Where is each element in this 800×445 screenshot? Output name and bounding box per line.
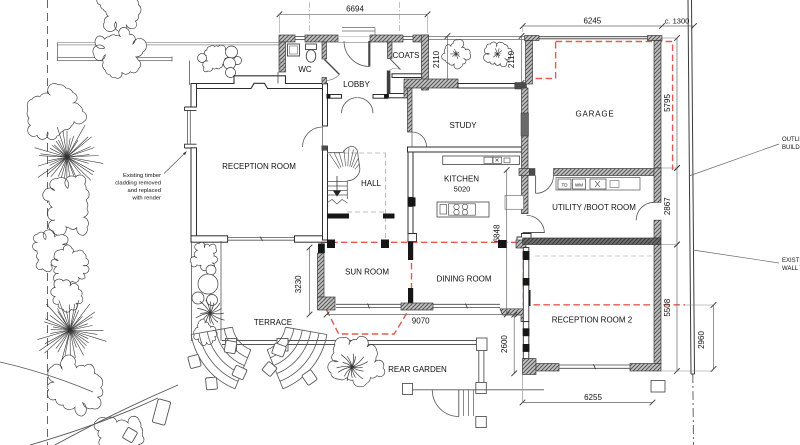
svg-text:WALL TO: WALL TO (782, 266, 800, 272)
svg-text:with render: with render (131, 196, 161, 202)
svg-text:5508: 5508 (663, 298, 672, 316)
svg-text:2600: 2600 (500, 335, 509, 353)
svg-text:6848: 6848 (493, 224, 502, 242)
svg-text:STUDY: STUDY (449, 121, 477, 130)
svg-text:and replaced: and replaced (127, 188, 161, 194)
svg-text:GARAGE: GARAGE (575, 110, 614, 119)
svg-text:SUN ROOM: SUN ROOM (345, 268, 389, 277)
svg-text:LOBBY: LOBBY (343, 80, 370, 89)
svg-text:2960: 2960 (697, 331, 706, 349)
svg-text:3230: 3230 (294, 275, 303, 293)
svg-text:RECEPTION ROOM: RECEPTION ROOM (222, 162, 296, 171)
svg-text:c. 1300: c. 1300 (665, 17, 690, 26)
svg-text:cladding removed: cladding removed (115, 181, 161, 187)
svg-text:6245: 6245 (583, 17, 601, 26)
svg-text:WC: WC (298, 65, 312, 74)
svg-text:KITCHEN: KITCHEN (444, 175, 479, 184)
svg-text:HALL: HALL (361, 179, 382, 188)
svg-text:2867: 2867 (663, 197, 672, 215)
svg-text:2110: 2110 (432, 50, 441, 68)
svg-text:6694: 6694 (346, 5, 364, 14)
svg-text:DINING ROOM: DINING ROOM (436, 275, 491, 284)
svg-text:5020: 5020 (454, 185, 471, 194)
svg-text:BUILDING: BUILDING (782, 145, 800, 151)
svg-text:WM: WM (575, 183, 583, 188)
svg-text:Existing timber: Existing timber (123, 173, 161, 179)
svg-text:TERRACE: TERRACE (254, 318, 292, 327)
svg-text:6255: 6255 (584, 393, 602, 402)
svg-text:EXISTING: EXISTING (782, 258, 800, 264)
svg-text:5795: 5795 (663, 94, 672, 112)
svg-text:OUTLINE: OUTLINE (782, 137, 800, 143)
svg-text:COATS: COATS (393, 51, 420, 60)
svg-text:2110: 2110 (507, 50, 516, 68)
svg-text:9070: 9070 (412, 317, 430, 326)
svg-text:UTILITY /BOOT ROOM: UTILITY /BOOT ROOM (552, 203, 636, 212)
svg-text:RECEPTION ROOM 2: RECEPTION ROOM 2 (552, 316, 633, 325)
svg-text:TD: TD (562, 183, 569, 188)
svg-text:REAR GARDEN: REAR GARDEN (388, 365, 447, 374)
